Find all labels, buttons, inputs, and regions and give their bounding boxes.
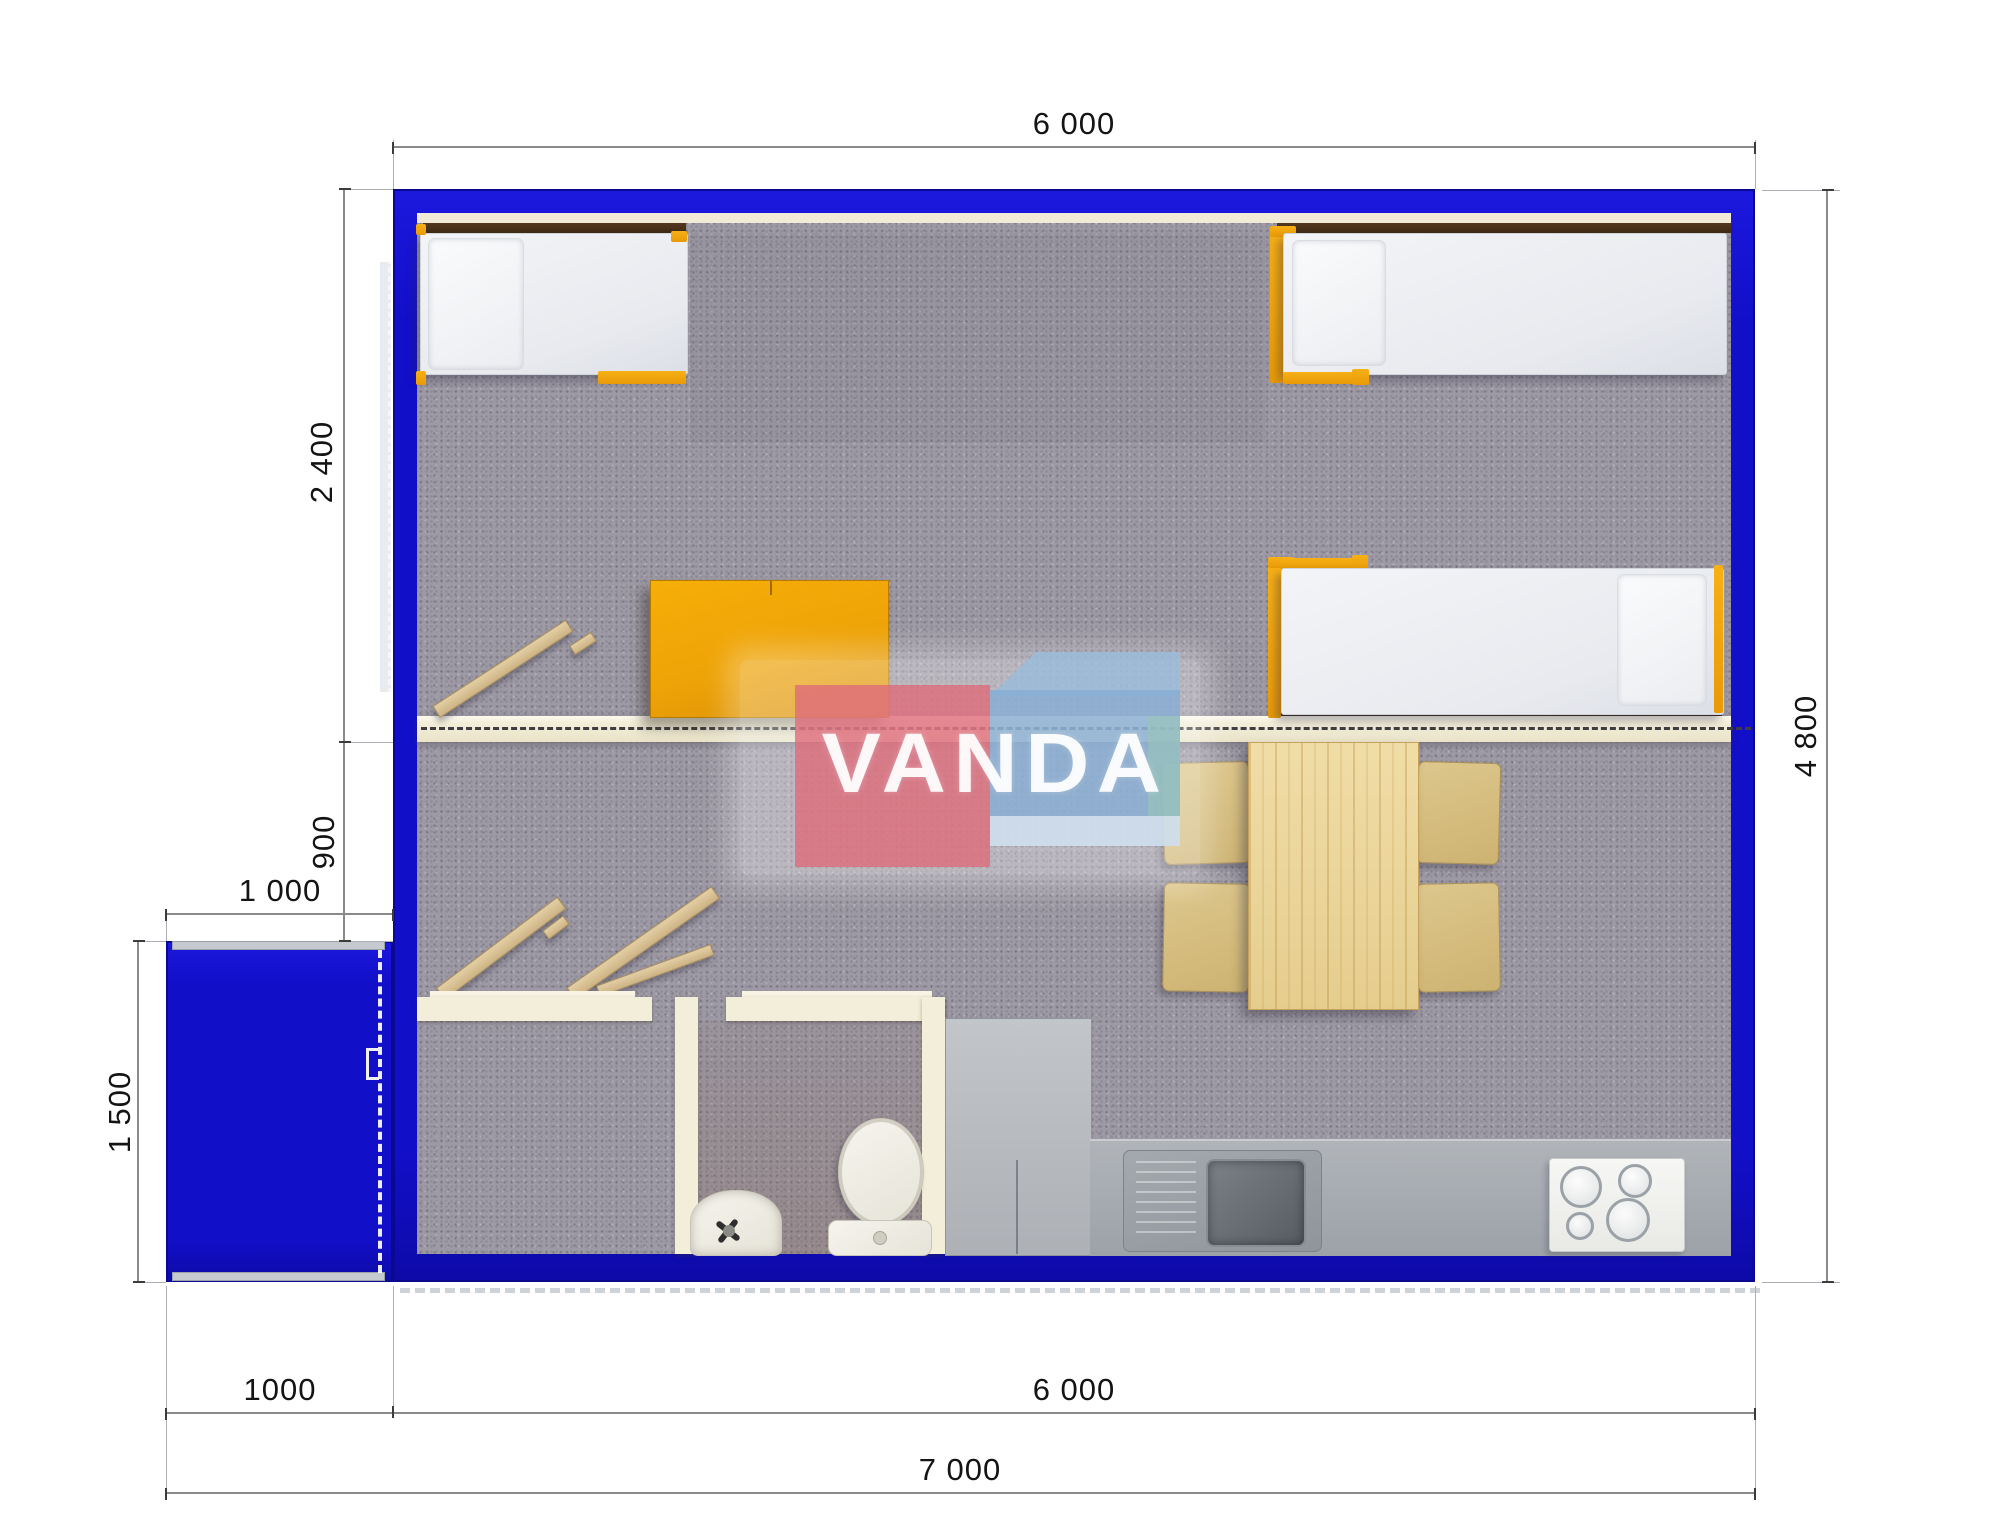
burner-top-right [1618,1164,1652,1198]
dim-label-bedroom-depth: 2 400 [304,362,340,562]
wall-batten-bed2 [1277,223,1731,233]
bed-1-frame-rail [598,371,686,384]
chair-right-2 [1416,882,1501,992]
bath-wall-horizontal-right [726,997,945,1021]
partition-axis-dashed-line [421,727,1751,730]
toilet-flush-button [873,1231,887,1245]
dim-label-porch-height: 1 500 [102,1012,138,1212]
bed-1-pillow [428,238,524,370]
bed-3-right-rail [1714,565,1723,713]
porch-top-sill [172,941,385,950]
wardrobe [650,580,889,718]
toilet-lid [838,1118,924,1226]
dim-label-porch-width-top: 1 000 [180,873,380,909]
dim-tick [392,1406,394,1418]
bed-1-frame-post-top [416,224,426,235]
bed-1-frame-post-bottom [416,371,426,385]
dining-table [1248,742,1419,1010]
floor-plan-canvas: VANDA 6 000 4 800 2 400 900 1 000 1 500 … [0,0,2000,1537]
kitchen-sink-basin [1206,1159,1306,1247]
burner-top-left [1560,1166,1602,1208]
kitchen-drainboard [1136,1161,1196,1241]
dim-line-top-width [393,146,1755,148]
dim-label-top-width: 6 000 [974,106,1174,142]
door-handle [366,1048,379,1080]
ext-line [166,1286,167,1496]
left-wall-dashed-line [388,240,391,900]
burner-bottom-right [1606,1198,1650,1242]
dim-line-bottom-split [166,1412,1755,1414]
wardrobe-door-seam [770,581,772,595]
dim-line-porch-width-top [166,913,393,915]
bed-2-foot-block [1352,369,1369,385]
top-wall-lining [417,213,1731,223]
entrance-door-dashed-line [378,950,382,1273]
porch-canopy [166,941,393,1282]
chair-right-1 [1416,761,1502,865]
dim-line-bottom-total [166,1492,1755,1494]
ext-line [393,1286,394,1416]
wall-batten-bed1 [423,223,686,233]
kitchen-cabinet-seam [1016,1160,1018,1254]
bed-1-frame-post-right [671,231,687,242]
chair-left-2 [1162,882,1251,993]
bed-2-head-rail [1270,228,1283,383]
bottom-hidden-dashed-line [400,1288,1760,1293]
bed-2-pillow [1292,240,1386,366]
partition-wall [417,716,1731,742]
dim-label-total-width: 7 000 [860,1452,1060,1488]
basin-drain-icon [723,1225,735,1237]
dim-line-hall-depth [343,742,345,941]
dim-line-right-height [1826,190,1828,1282]
bed-3-pillow [1617,574,1707,706]
bed-3-head-rail [1268,563,1281,718]
chair-left-1 [1162,761,1252,865]
dim-label-hall-depth: 900 [306,742,342,942]
burner-bottom-left [1566,1212,1594,1240]
dim-label-building-width-bottom: 6 000 [974,1372,1174,1408]
ext-line [1755,1286,1756,1496]
bath-wall-horizontal-left [417,997,652,1021]
porch-bottom-sill [172,1272,385,1281]
dim-label-porch-width-bottom: 1000 [180,1372,380,1408]
bath-wall-vertical-right [922,997,945,1254]
kitchen-tall-cabinet [945,1018,1092,1256]
dim-label-right-height: 4 800 [1788,636,1824,836]
dim-line-bedroom-depth [343,189,345,742]
bed-2-foot-rail [1283,372,1359,384]
